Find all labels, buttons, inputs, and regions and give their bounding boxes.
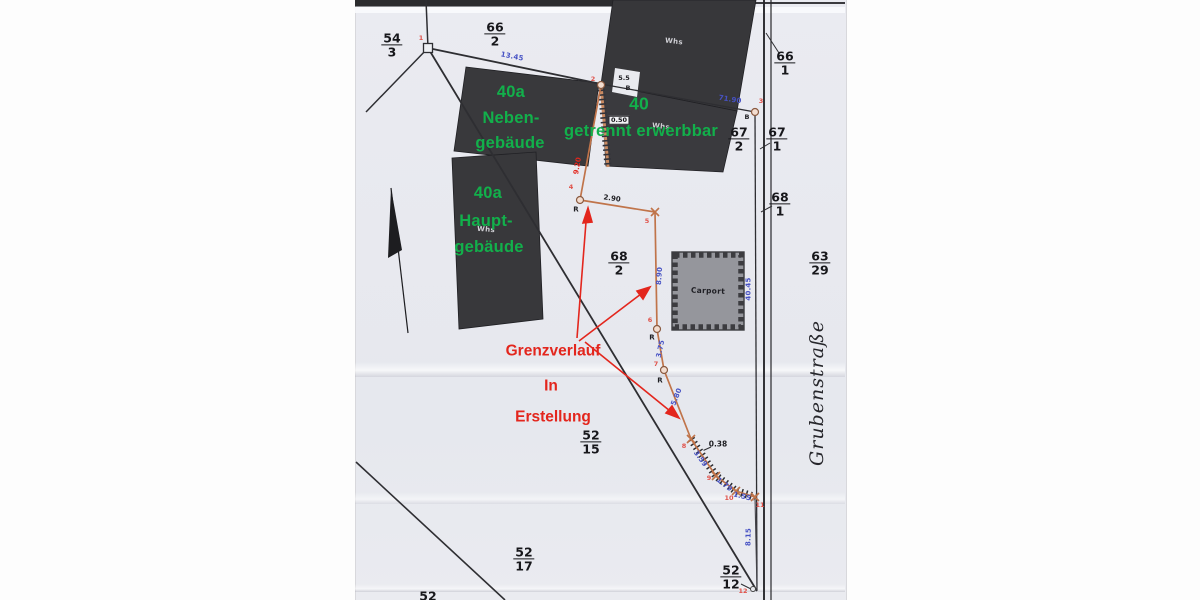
point-number-4: 4 — [569, 184, 574, 191]
parcel-denominator: 2 — [728, 139, 749, 153]
point-letter-b-2: B — [745, 114, 750, 121]
parcel-denominator: 1 — [769, 204, 790, 218]
parcel-denominator: 15 — [580, 442, 601, 456]
parcel-numerator: 68 — [608, 249, 629, 262]
measurement-8-90: 8.90 — [656, 267, 664, 286]
parcel-label-52-12: 5212 — [720, 563, 741, 590]
parcel-label-63-29: 6329 — [809, 249, 830, 276]
measurement-5-80: 5.80 — [670, 387, 683, 406]
parcel-label-66-1: 661 — [774, 49, 795, 76]
parcel-numerator: 52 — [580, 428, 601, 441]
measurement-3-75: 3.75 — [656, 339, 667, 358]
measurement-3-59: 3.59 — [692, 450, 708, 469]
measurement-13-45: 13.45 — [500, 51, 524, 62]
parcel-denominator: 3 — [381, 45, 402, 59]
parcel-label-68-1: 681 — [769, 190, 790, 217]
parcel-numerator: 52 — [720, 563, 741, 576]
parcel-numerator: 66 — [774, 49, 795, 62]
green-note-40-line1: 40 — [629, 95, 649, 113]
parcel-numerator: 66 — [484, 20, 505, 33]
street-name-label: Grubenstraße — [806, 320, 828, 466]
parcel-label-52-15: 5215 — [580, 428, 601, 455]
parcel-label-66-2: 662 — [484, 20, 505, 47]
parcel-denominator: 2 — [484, 34, 505, 48]
measurement-1-79: 1.79 — [715, 477, 734, 494]
parcel-label-54-3: 543 — [381, 31, 402, 58]
map-labels-layer: 13.4571.908.9040.453.755.803.591.791.558… — [0, 0, 1200, 600]
measurement-40-45: 40.45 — [746, 277, 753, 300]
parcel-denominator: 17 — [513, 559, 534, 573]
parcel-denominator: 1 — [774, 63, 795, 77]
parcel-numerator: 67 — [766, 125, 787, 138]
parcel-label-67-1: 671 — [766, 125, 787, 152]
measurement-5-5: 5.5 — [618, 75, 630, 82]
parcel-label-68-2: 682 — [608, 249, 629, 276]
parcel-numerator: 68 — [769, 190, 790, 203]
point-number-10: 10 — [724, 495, 733, 502]
green-note-40a-neben-line3: gebäude — [475, 135, 544, 152]
parcel-label-67-2: 672 — [728, 125, 749, 152]
parcel-label-52: 52 — [417, 589, 438, 600]
point-number-11: 11 — [755, 502, 764, 509]
point-number-8: 8 — [682, 443, 687, 450]
parcel-denominator: 2 — [608, 263, 629, 277]
measurement-71-90: 71.90 — [718, 95, 742, 106]
measurement-0-38: 0.38 — [709, 440, 728, 448]
parcel-numerator: 67 — [728, 125, 749, 138]
point-letter-r-1: R — [573, 207, 578, 214]
red-note-in: In — [544, 378, 558, 394]
green-note-40a-haupt-line1: 40a — [474, 185, 502, 202]
parcel-numerator: 54 — [381, 31, 402, 44]
green-note-40-line2: getrennt erwerbbar — [564, 123, 718, 140]
point-letter-r-3: R — [657, 378, 662, 385]
point-number-3: 3 — [759, 98, 764, 105]
cadastral-map-page: 13.4571.908.9040.453.755.803.591.791.558… — [0, 0, 1200, 600]
point-number-9: 9 — [707, 475, 712, 482]
point-number-5: 5 — [645, 218, 650, 225]
measurement-1-55: 1.55 — [732, 491, 751, 502]
parcel-denominator: 1 — [766, 139, 787, 153]
point-letter-b-1: B — [626, 85, 631, 92]
parcel-label-52-17: 5217 — [513, 545, 534, 572]
building-label-whs-1: Whs — [665, 38, 684, 47]
point-number-2: 2 — [591, 76, 596, 83]
parcel-numerator: 52 — [417, 589, 438, 600]
measurement-2-90: 2.90 — [603, 194, 621, 203]
parcel-denominator: 12 — [720, 577, 741, 591]
parcel-denominator: 29 — [809, 263, 830, 277]
green-note-40a-neben-line2: Neben- — [482, 110, 539, 127]
point-number-1: 1 — [419, 35, 424, 42]
green-note-40a-haupt-line3: gebäude — [454, 239, 523, 256]
point-number-6: 6 — [648, 317, 653, 324]
red-note-grenzverlauf: Grenzverlauf — [506, 343, 601, 359]
measurement-9-20: 9.20 — [573, 157, 583, 175]
parcel-numerator: 52 — [513, 545, 534, 558]
parcel-numerator: 63 — [809, 249, 830, 262]
measurement-8-15: 8.15 — [745, 528, 752, 546]
point-letter-r-2: R — [649, 335, 654, 342]
building-label-carport: Carport — [691, 287, 725, 296]
point-number-7: 7 — [654, 361, 659, 368]
green-note-40a-haupt-line2: Haupt- — [459, 213, 512, 230]
red-note-erstellung: Erstellung — [515, 409, 591, 425]
green-note-40a-neben-line1: 40a — [497, 84, 525, 101]
